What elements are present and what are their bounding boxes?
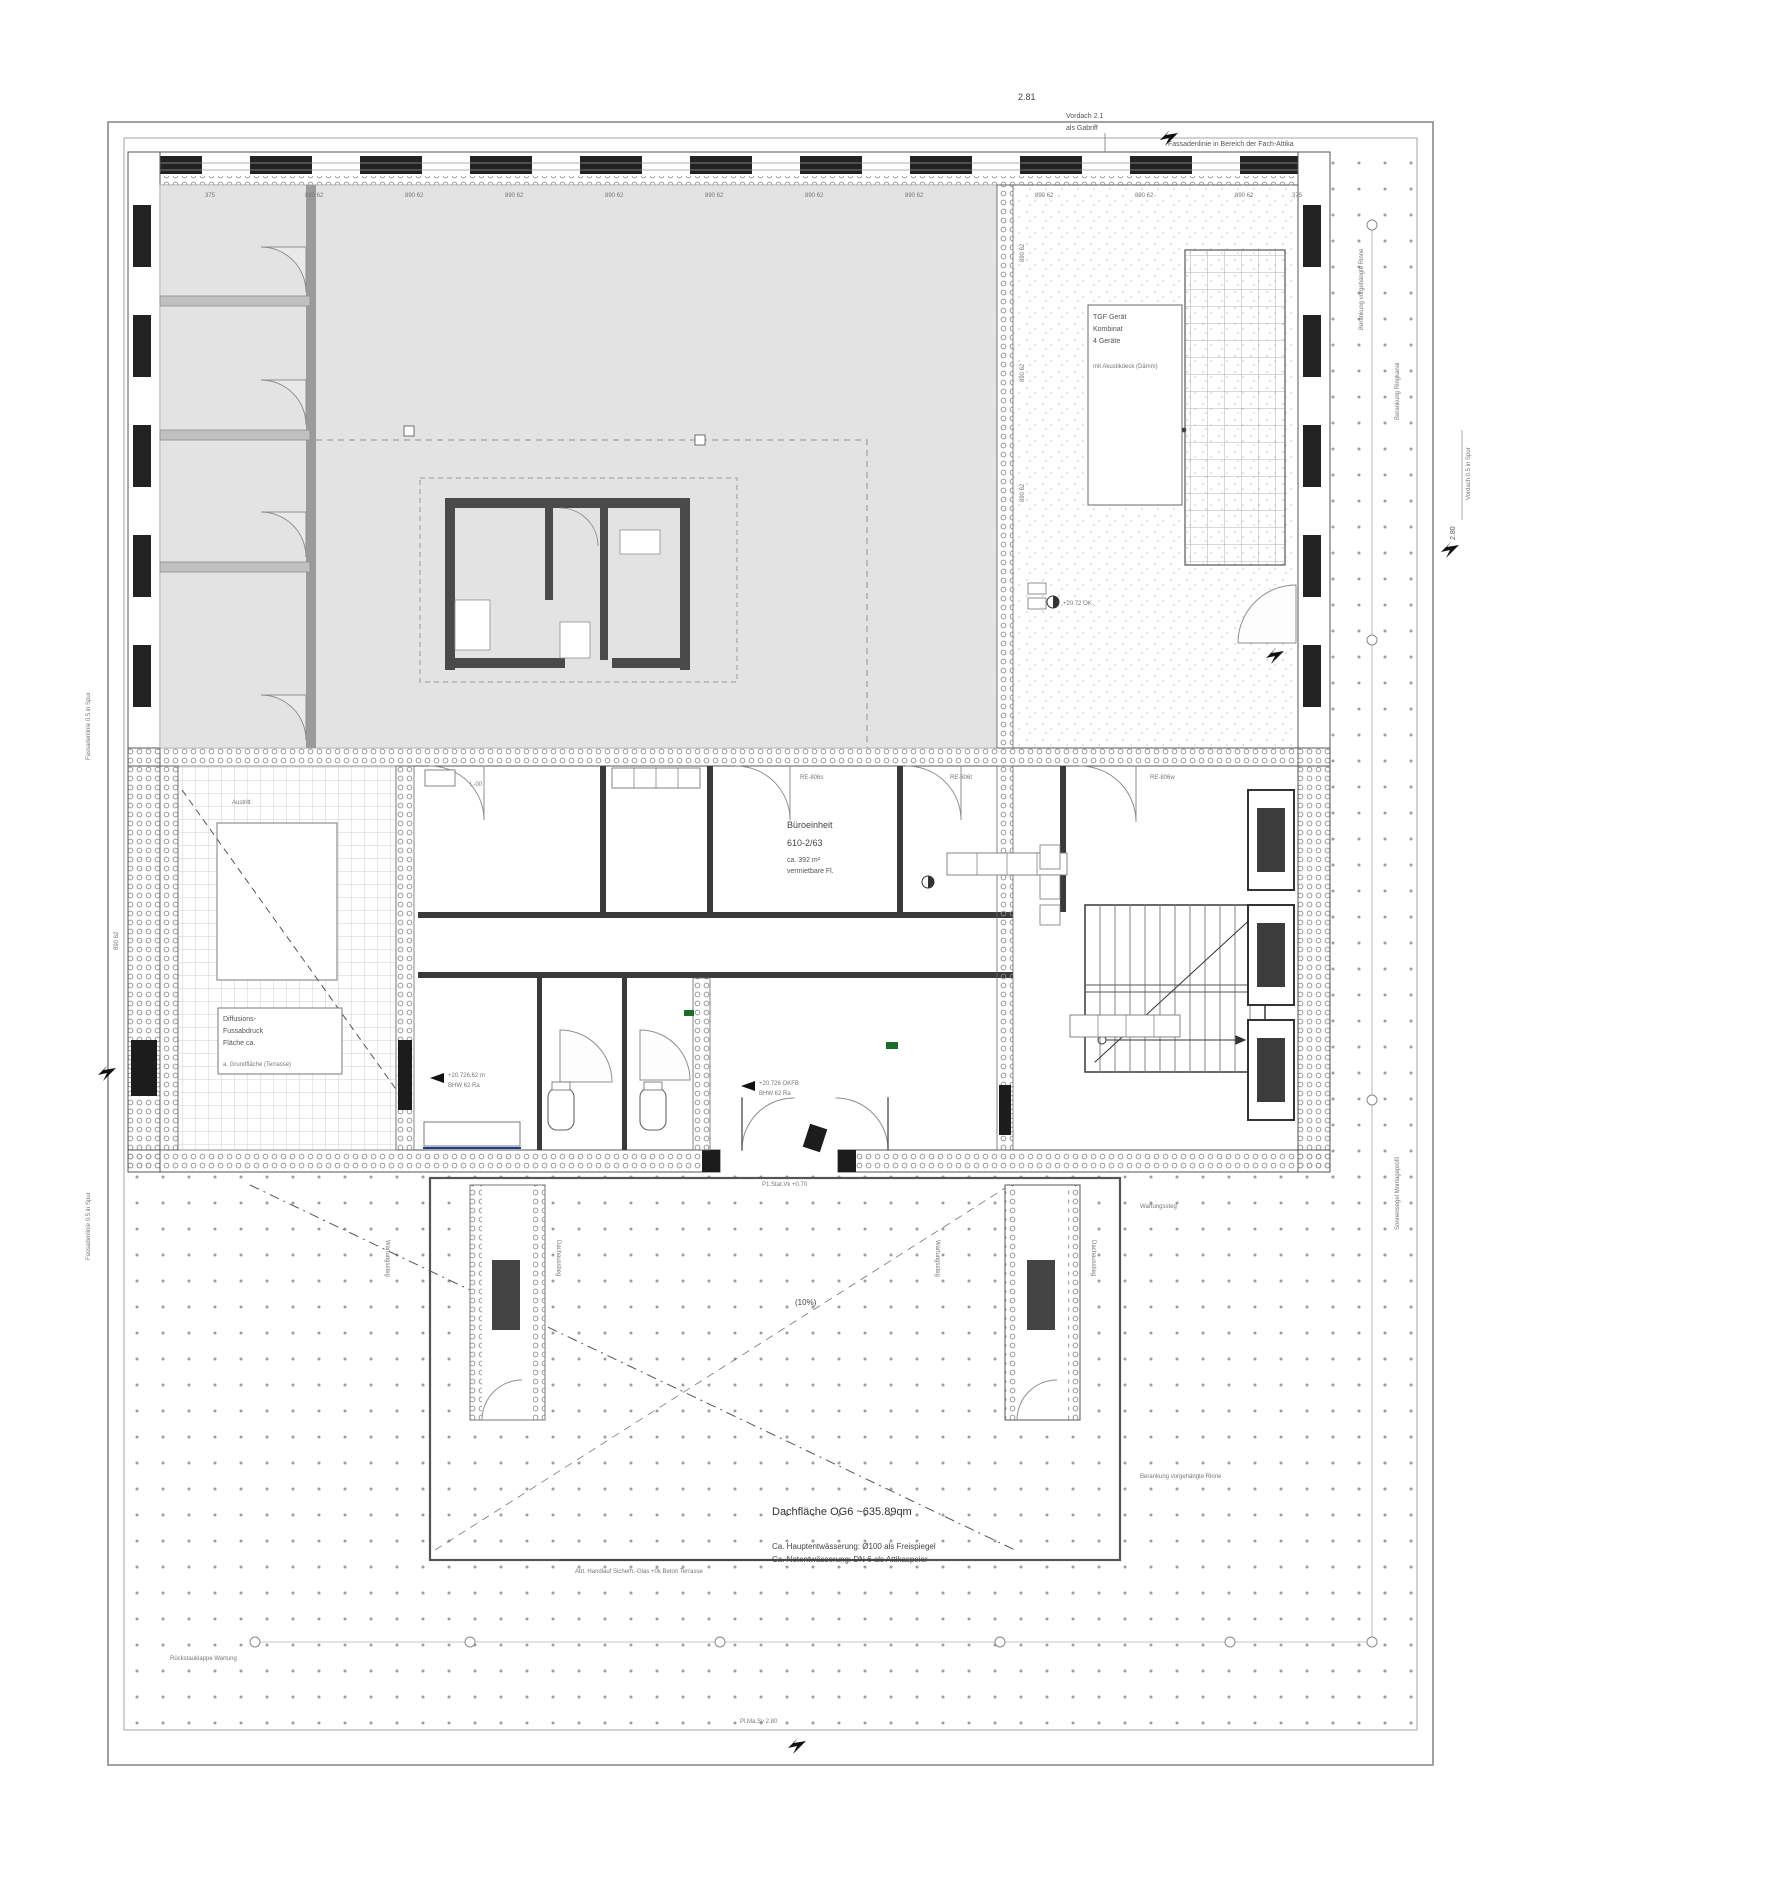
room-tag-l00: L-00 [470,782,483,788]
rinne-note-bottom: Berankung vorgehängte Rinne [1140,1474,1222,1480]
drain-note-1: Ca. Hauptentwässerung: Ø100 als Freispie… [772,1542,936,1551]
svg-text:a. Grundfläche (Terrasse): a. Grundfläche (Terrasse) [223,1062,291,1068]
right-note-3: Berankung vorgehängte Rinne [1359,248,1365,330]
gray-roof-area [160,185,997,748]
bottom-terrace-field [124,1172,1417,1730]
floor-plan-drawing: TGF Gerät Kombinat 4 Geräte mit Akustikd… [0,0,1781,1900]
right-shaft-rooms [1248,790,1294,1120]
svg-text:BHW 62 Ra: BHW 62 Ra [759,1091,791,1097]
shaft-label-1: Dachausstieg [555,1240,561,1276]
room-tag-3: RE-806w [1150,775,1175,781]
svg-text:890 62: 890 62 [605,193,624,199]
wartungssteg-2: Wartungssteg [934,1240,940,1277]
fascia-note: Fassadenlinie in Bereich der Fach-Attika [1168,141,1294,148]
corridor-wall-top [418,912,1013,918]
svg-text:Fläche ca.: Fläche ca. [223,1040,255,1047]
upper-room-doors [430,766,1136,822]
svg-text:890 62: 890 62 [1235,193,1254,199]
techbox-line1: TGF Gerät [1093,314,1127,321]
austritt-label: Austritt [232,800,251,806]
svg-text:375: 375 [1292,193,1303,199]
slope-label: (10%) [795,1298,817,1307]
right-note-2: Sonnensegel Montageprofil [1395,1157,1401,1230]
shaft-label-2: Dachausstieg [1090,1240,1096,1276]
top-note-1: Vordach 2.1 [1066,113,1103,120]
roof-area-title: Dachfläche OG6 ~635.89qm [772,1506,912,1518]
wc-rooms [548,1010,898,1130]
svg-text:890 62: 890 62 [1020,243,1026,262]
entry-level-note: P1.Stat.Vk +0.70 [762,1182,808,1188]
roof-shaft-left [470,1185,545,1420]
floor-plan-sheet: TGF Gerät Kombinat 4 Geräte mit Akustikd… [0,0,1781,1900]
terrace-info-box: Diffusions- Fussabdruck Fläche ca. a. Gr… [218,1008,342,1074]
right-note-1: Berankung Ringkanal [1395,363,1401,420]
level-marker-hall: +20.726 OKFB BHW 62 Ra [741,1081,799,1097]
svg-text:890 62: 890 62 [705,193,724,199]
svg-text:375: 375 [205,193,216,199]
right-dim: 2.80 [1450,526,1457,540]
level-marker-left: +20.726,62 m BHW 62 Ra [430,1073,485,1089]
svg-text:+20.726,62 m: +20.726,62 m [448,1073,485,1079]
left-parapet-lintel [131,1040,157,1096]
svg-text:890 62: 890 62 [405,193,424,199]
svg-text:890 62: 890 62 [305,193,324,199]
terrace-level-text: +20.72 OK [1063,601,1092,607]
right-bolt-icon [1441,542,1459,558]
techbox-line3: 4 Geräte [1093,338,1120,345]
middle-band-wall [128,748,1330,766]
svg-text:890 62: 890 62 [505,193,524,199]
svg-text:BHW 62 Ra: BHW 62 Ra [448,1083,480,1089]
roof-shaft-right [1005,1185,1080,1420]
left-bolt-icon [98,1065,116,1081]
terrace-grid-panel [1185,250,1285,565]
svg-text:890 62: 890 62 [905,193,924,199]
wartungssteg-1: Wartungssteg [384,1240,390,1277]
terrace-annotation-box: TGF Gerät Kombinat 4 Geräte mit Akustikd… [1088,305,1186,505]
left-terrace-room: Austritt Diffusions- Fussabdruck Fläche … [160,766,414,1150]
bottom-wall-left [128,1150,720,1172]
office-floor: Büroeinheit 610-2/63 ca. 392 m² vermietb… [418,766,1294,1152]
techbox-line2: Kombinat [1093,326,1123,333]
left-tick-1: 890 62 [114,931,120,950]
bottom-wall-right [838,1150,1330,1172]
svg-text:Fussabdruck: Fussabdruck [223,1028,264,1035]
left-note-1: Fassadenlinie 0.5 in Spur [86,692,92,760]
top-right-terrace-room: TGF Gerät Kombinat 4 Geräte mit Akustikd… [997,185,1298,748]
terrace-room-left-wall [997,185,1013,748]
svg-text:890 62: 890 62 [1020,483,1026,502]
entrance-double-door [742,1098,888,1152]
svg-text:610-2/63: 610-2/63 [787,838,823,848]
svg-text:ca. 392 m²: ca. 392 m² [787,857,821,864]
stair [1085,905,1265,1072]
top-wall-windows [128,156,1330,185]
svg-text:890 62: 890 62 [1020,363,1026,382]
top-dim: 2.81 [1018,92,1036,102]
left-parapet [128,766,160,1172]
terrace-opening [217,823,337,980]
svg-text:+20.726 OKFB: +20.726 OKFB [759,1081,799,1087]
wartungssteg-3: Wartungssteg [1140,1204,1177,1210]
svg-text:Diffusions-: Diffusions- [223,1016,257,1023]
room-tag-2: RE-806t [950,775,972,781]
svg-text:890 62: 890 62 [1035,193,1054,199]
svg-text:Büroeinheit: Büroeinheit [787,820,833,830]
techbox-line4: mit Akustikdeck (Dämm) [1093,364,1158,370]
right-spur-note: Vordach 0.5 in Spur [1466,447,1472,500]
drain-note-2: Ca. Notentwässerung: DN 6 als Attikaspei… [772,1555,928,1564]
svg-text:vermietbare Fl.: vermietbare Fl. [787,868,834,875]
top-note-2: als Gabriff [1066,125,1098,132]
right-parapet [1298,766,1330,1172]
bottom-dim-note: Pl.Ma.Sv 2.80 [740,1719,778,1725]
room-tag-1: RE-806s [800,775,823,781]
bottom-bolt-icon [788,1738,806,1754]
corridor-wall-bottom [418,972,1013,978]
roof-wall-vertical [306,185,316,748]
handrail-note: Abt. Handlauf Sicherh.-Glas +0k Beton Te… [575,1569,703,1575]
svg-text:890 62: 890 62 [805,193,824,199]
rueckstau-note: Rückstauklappe Wartung [170,1656,237,1662]
left-note-2: Fassadenlinie 0.5 in Spur [86,1192,92,1260]
svg-text:890 62: 890 62 [1135,193,1154,199]
unit-label: Büroeinheit 610-2/63 ca. 392 m² vermietb… [787,820,834,875]
